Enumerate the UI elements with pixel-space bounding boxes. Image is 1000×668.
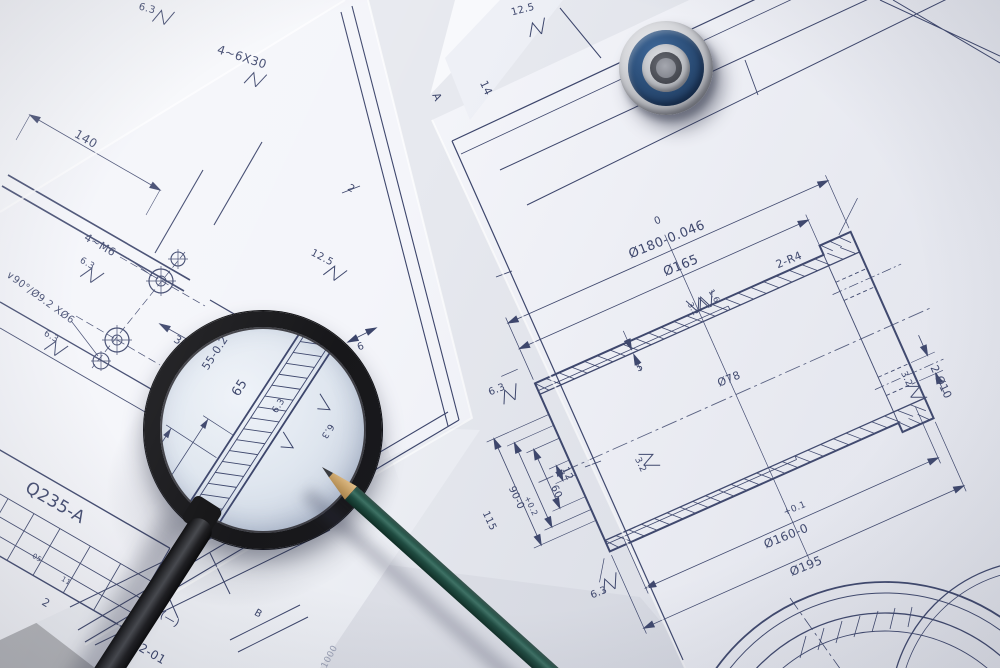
photo-scene: 0Ø180-0.046Ø1652-R41.63.256.33.21260+0.2… <box>0 0 1000 668</box>
bearing-hole <box>656 58 676 78</box>
magnifying-glass-rim <box>144 311 382 549</box>
ball-bearing <box>619 21 713 115</box>
